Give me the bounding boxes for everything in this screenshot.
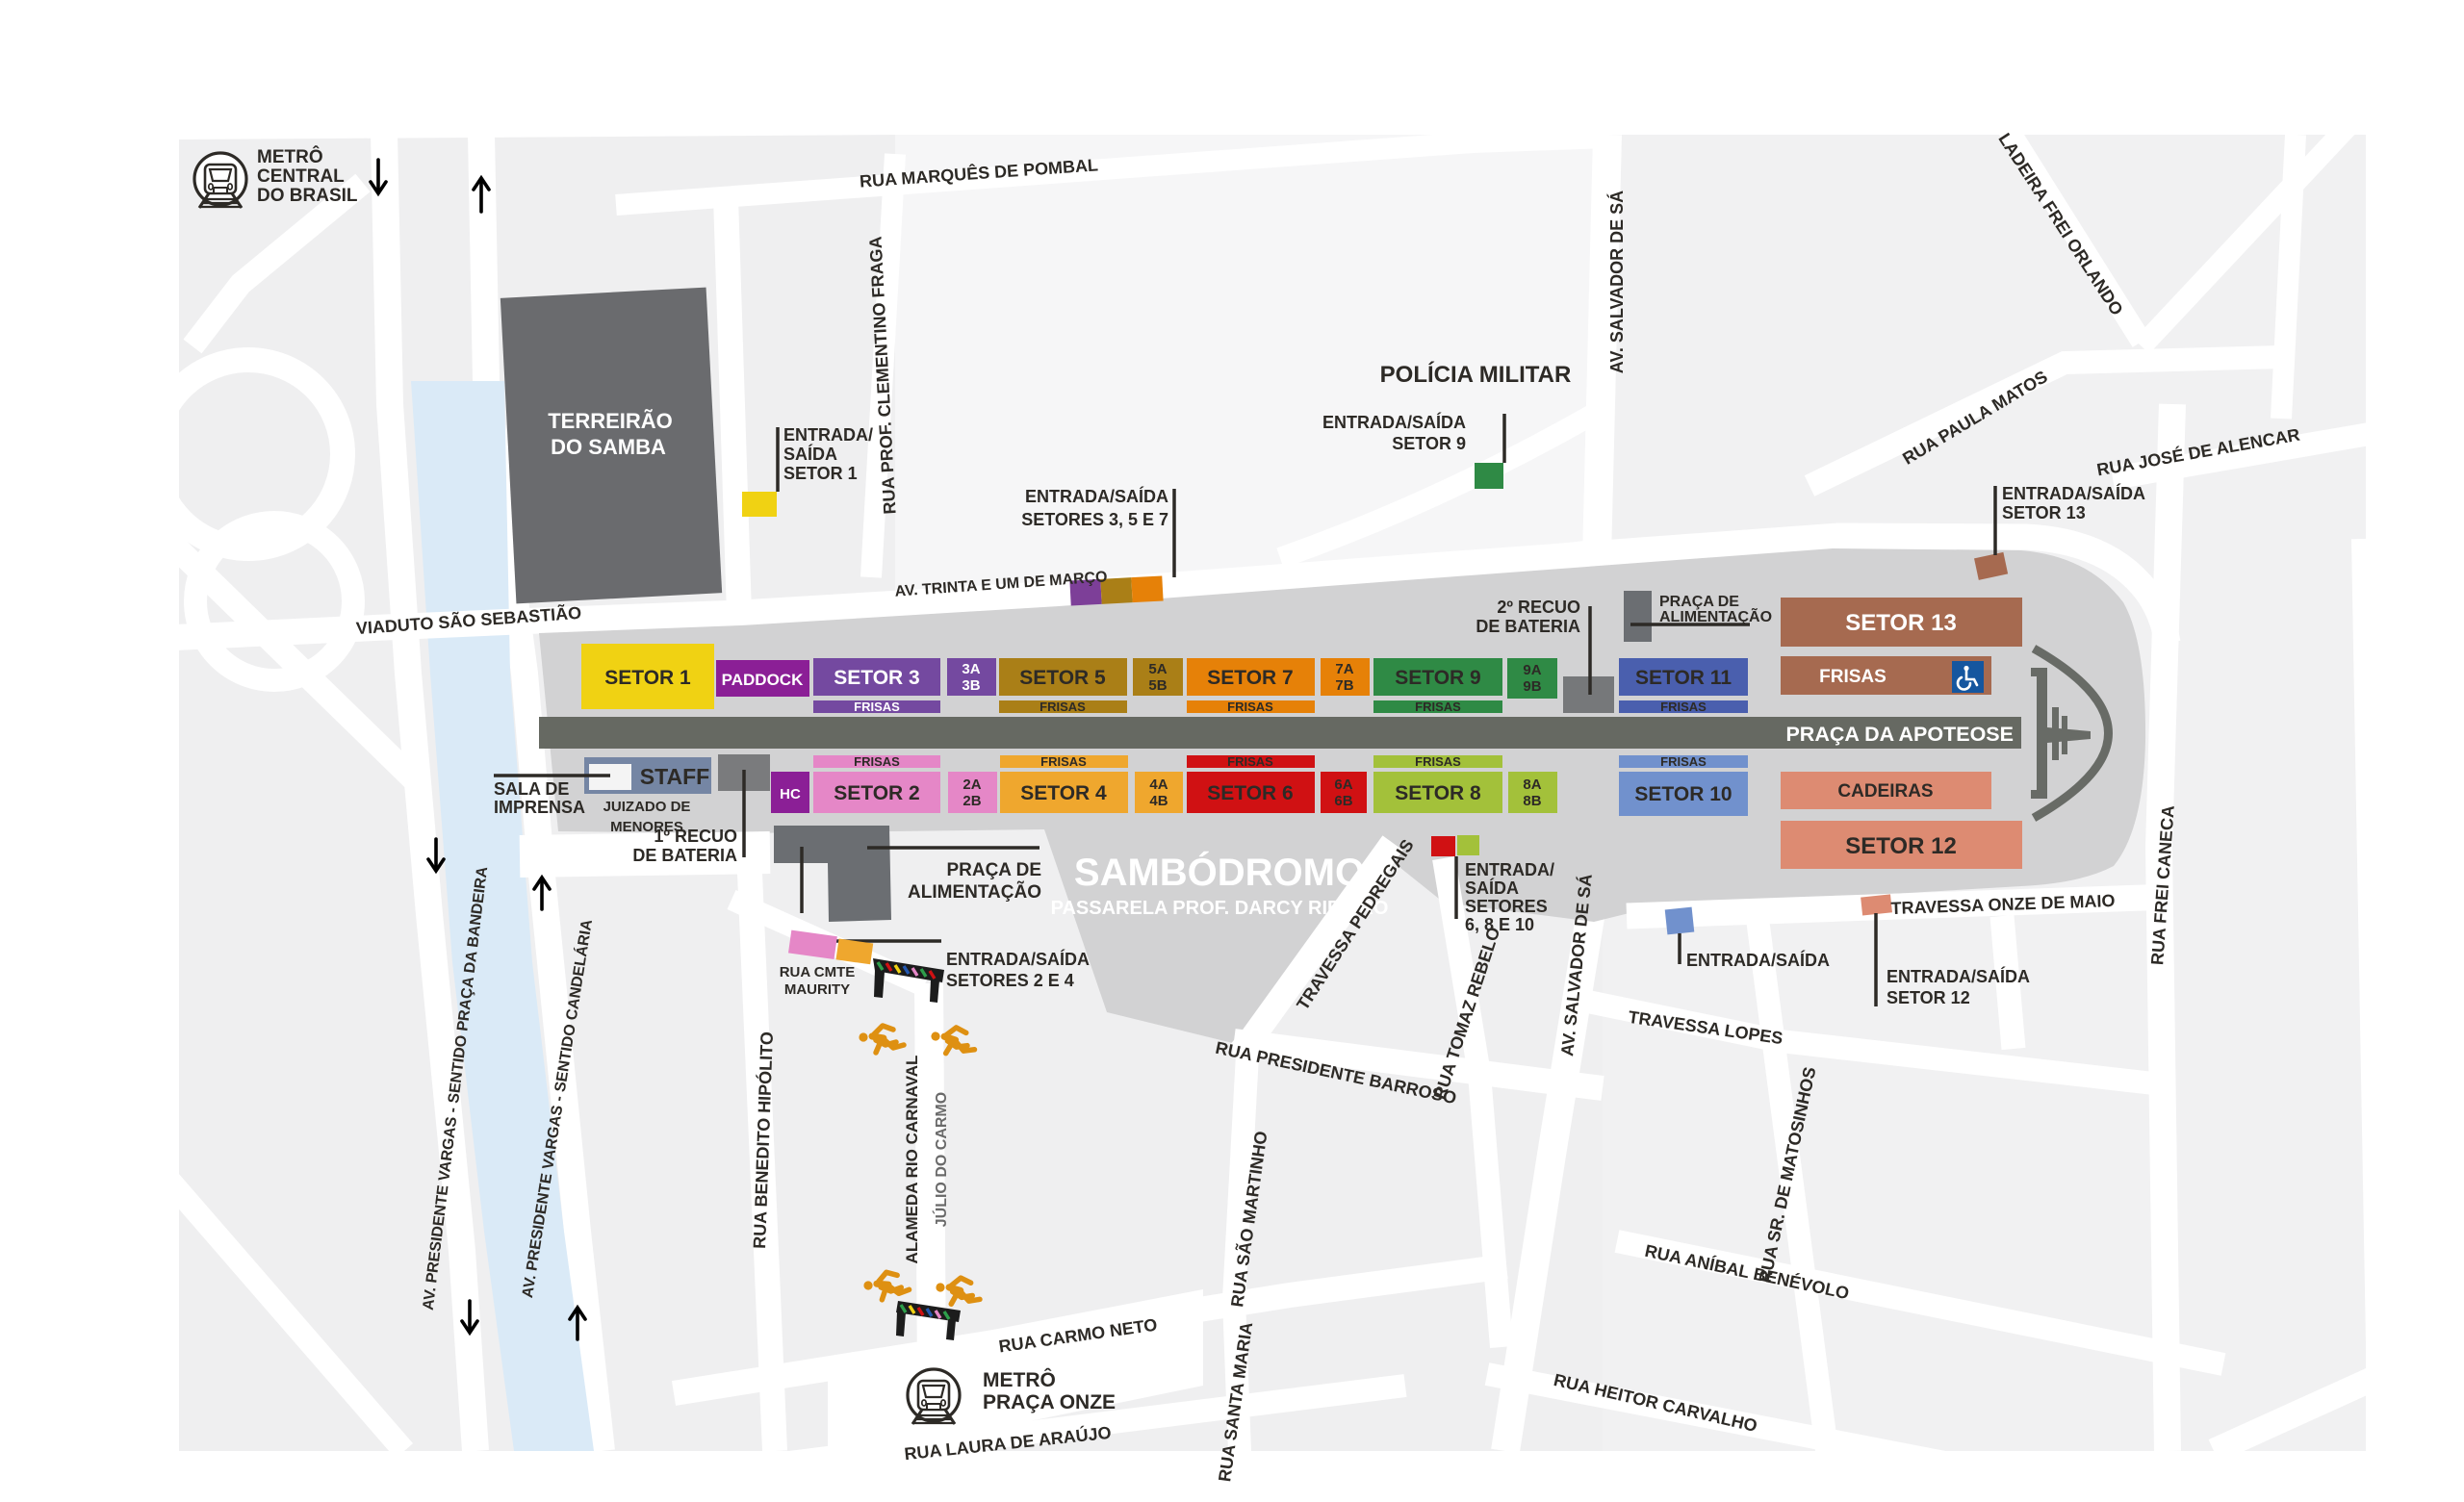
svg-text:SETOR 2: SETOR 2 <box>834 782 919 804</box>
svg-text:CADEIRAS: CADEIRAS <box>1837 781 1933 802</box>
svg-text:DO SAMBA: DO SAMBA <box>551 435 666 459</box>
svg-text:FRISAS: FRISAS <box>1415 700 1461 714</box>
svg-text:ALAMEDA RIO CARNAVAL: ALAMEDA RIO CARNAVAL <box>903 1056 921 1264</box>
svg-text:METRÔ: METRÔ <box>983 1368 1056 1391</box>
svg-text:1º RECUO: 1º RECUO <box>654 827 737 846</box>
svg-text:ENTRADA/: ENTRADA/ <box>1465 860 1554 879</box>
svg-text:ENTRADA/SAÍDA: ENTRADA/SAÍDA <box>2002 483 2145 503</box>
svg-text:STAFF: STAFF <box>640 764 709 789</box>
svg-text:METRÔ: METRÔ <box>257 146 323 167</box>
svg-text:SETORES: SETORES <box>1465 897 1548 916</box>
svg-text:FRISAS: FRISAS <box>854 700 900 714</box>
svg-text:SAÍDA: SAÍDA <box>783 444 837 464</box>
svg-text:2B: 2B <box>962 793 981 809</box>
svg-text:POLÍCIA MILITAR: POLÍCIA MILITAR <box>1380 361 1572 388</box>
svg-text:5A: 5A <box>1148 661 1167 677</box>
svg-text:SETORES 3, 5 E 7: SETORES 3, 5 E 7 <box>1021 510 1168 529</box>
svg-text:SETOR 1: SETOR 1 <box>604 667 691 689</box>
svg-text:ENTRADA/SAÍDA: ENTRADA/SAÍDA <box>946 949 1090 969</box>
svg-text:SETOR 9: SETOR 9 <box>1392 434 1466 453</box>
svg-text:FRISAS: FRISAS <box>1660 754 1707 769</box>
svg-text:RUA CMTE: RUA CMTE <box>780 964 856 980</box>
svg-text:SETOR 7: SETOR 7 <box>1207 667 1293 689</box>
svg-text:FRISAS: FRISAS <box>1040 754 1087 769</box>
svg-text:PRAÇA DE: PRAÇA DE <box>946 860 1041 880</box>
svg-text:SETORES 2 E 4: SETORES 2 E 4 <box>946 971 1074 990</box>
svg-text:JUIZADO DE: JUIZADO DE <box>603 799 691 815</box>
svg-text:PADDOCK: PADDOCK <box>722 671 804 689</box>
svg-text:SETOR 13: SETOR 13 <box>2002 503 2086 522</box>
svg-text:SETOR 13: SETOR 13 <box>1845 610 1957 636</box>
svg-text:FRISAS: FRISAS <box>1227 700 1273 714</box>
svg-text:ENTRADA/: ENTRADA/ <box>783 425 873 445</box>
svg-text:ALIMENTAÇÃO: ALIMENTAÇÃO <box>1659 606 1772 625</box>
svg-text:6A: 6A <box>1334 776 1352 793</box>
svg-text:FRISAS: FRISAS <box>1227 754 1273 769</box>
svg-text:3A: 3A <box>962 661 980 677</box>
svg-text:SETOR 12: SETOR 12 <box>1886 988 1970 1007</box>
svg-text:JÚLIO DO CARMO: JÚLIO DO CARMO <box>932 1092 950 1227</box>
svg-text:FRISAS: FRISAS <box>1415 754 1461 769</box>
svg-text:5B: 5B <box>1148 677 1167 694</box>
svg-text:SETOR 4: SETOR 4 <box>1020 782 1107 804</box>
svg-text:DE BATERIA: DE BATERIA <box>632 846 737 865</box>
svg-text:ENTRADA/SAÍDA: ENTRADA/SAÍDA <box>1886 966 2030 986</box>
svg-text:SETOR 11: SETOR 11 <box>1635 667 1732 689</box>
svg-text:ALIMENTAÇÃO: ALIMENTAÇÃO <box>908 881 1041 903</box>
svg-text:PRAÇA ONZE: PRAÇA ONZE <box>983 1391 1116 1413</box>
svg-text:AV. SALVADOR DE SÁ: AV. SALVADOR DE SÁ <box>1606 191 1627 373</box>
svg-text:DO BRASIL: DO BRASIL <box>257 186 358 206</box>
svg-text:SETOR 6: SETOR 6 <box>1207 782 1293 804</box>
svg-text:2A: 2A <box>962 776 981 793</box>
svg-text:SETOR 5: SETOR 5 <box>1019 667 1106 689</box>
svg-text:DE BATERIA: DE BATERIA <box>1476 617 1580 636</box>
svg-text:SAMBÓDROMO: SAMBÓDROMO <box>1074 850 1365 894</box>
svg-text:FRISAS: FRISAS <box>1819 667 1886 687</box>
svg-text:SALA DE: SALA DE <box>494 779 569 799</box>
svg-text:8A: 8A <box>1523 776 1541 793</box>
svg-text:PRAÇA DA APOTEOSE: PRAÇA DA APOTEOSE <box>1785 723 2014 746</box>
svg-text:4B: 4B <box>1149 793 1168 809</box>
svg-text:3B: 3B <box>962 677 980 694</box>
svg-text:HC: HC <box>780 786 801 802</box>
svg-text:ENTRADA/SAÍDA: ENTRADA/SAÍDA <box>1025 486 1168 506</box>
svg-text:CENTRAL: CENTRAL <box>257 166 345 187</box>
svg-text:MAURITY: MAURITY <box>784 981 850 998</box>
svg-text:SETOR 8: SETOR 8 <box>1395 782 1481 804</box>
svg-text:IMPRENSA: IMPRENSA <box>494 798 585 817</box>
svg-text:PASSARELA PROF. DARCY RIBEIRO: PASSARELA PROF. DARCY RIBEIRO <box>1051 898 1389 919</box>
svg-text:FRISAS: FRISAS <box>854 754 900 769</box>
svg-text:SETOR 10: SETOR 10 <box>1634 783 1732 805</box>
svg-text:FRISAS: FRISAS <box>1039 700 1086 714</box>
svg-text:7A: 7A <box>1335 661 1353 677</box>
svg-text:6B: 6B <box>1334 793 1352 809</box>
svg-text:4A: 4A <box>1149 776 1168 793</box>
svg-text:FRISAS: FRISAS <box>1660 700 1707 714</box>
svg-text:ENTRADA/SAÍDA: ENTRADA/SAÍDA <box>1322 412 1466 432</box>
svg-text:9A: 9A <box>1523 662 1541 678</box>
svg-text:8B: 8B <box>1523 793 1541 809</box>
svg-text:SETOR 1: SETOR 1 <box>783 464 858 483</box>
svg-text:ENTRADA/SAÍDA: ENTRADA/SAÍDA <box>1686 950 1830 970</box>
svg-text:SETOR 3: SETOR 3 <box>834 667 919 689</box>
svg-text:TERREIRÃO: TERREIRÃO <box>548 409 673 433</box>
svg-text:7B: 7B <box>1335 677 1353 694</box>
svg-text:9B: 9B <box>1523 678 1541 695</box>
svg-text:SETOR 9: SETOR 9 <box>1395 667 1480 689</box>
svg-text:PRAÇA DE: PRAÇA DE <box>1659 594 1739 610</box>
svg-text:SETOR 12: SETOR 12 <box>1845 833 1957 859</box>
svg-text:SAÍDA: SAÍDA <box>1465 878 1519 898</box>
svg-text:2º RECUO: 2º RECUO <box>1497 598 1580 617</box>
